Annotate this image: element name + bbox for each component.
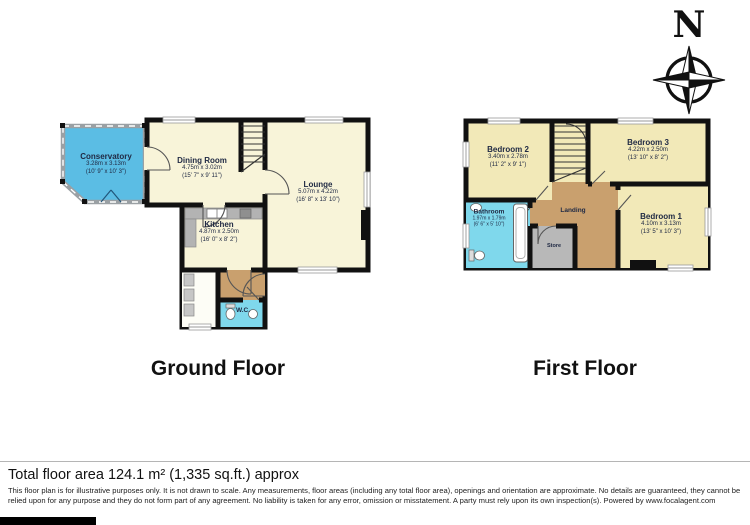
ground-floor-drawing: [55, 112, 375, 337]
bottom-bar: [0, 517, 96, 525]
compass-north-label: N: [648, 6, 730, 44]
hob-icon: [240, 209, 251, 218]
first-floor-plan: Bedroom 2 3.40m x 2.78m (11' 2" x 9' 1")…: [458, 112, 713, 282]
ground-floor-title: Ground Floor: [98, 357, 338, 381]
chimney-breast: [361, 210, 368, 240]
disclaimer-text: This floor plan is for illustrative purp…: [8, 486, 742, 507]
chimney-breast: [630, 260, 656, 268]
wc-floor: [218, 300, 265, 327]
first-floor-title: First Floor: [465, 357, 705, 381]
basin-icon: [471, 204, 482, 212]
first-floor-drawing: [458, 112, 713, 282]
toilet-icon: [226, 309, 235, 320]
basin-icon: [249, 310, 258, 319]
ground-floor-plan: Conservatory 3.28m x 3.13m (10' 9" x 10'…: [55, 112, 375, 337]
conservatory-room: [60, 123, 147, 204]
footer: Total floor area 124.1 m² (1,335 sq.ft.)…: [0, 461, 750, 507]
utility-appliances: [184, 274, 194, 316]
compass-star-icon: [648, 44, 730, 116]
bedroom1-floor: [618, 184, 708, 268]
compass-rose: N: [648, 6, 730, 118]
landing-corridor: [575, 226, 618, 268]
total-floor-area: Total floor area 124.1 m² (1,335 sq.ft.)…: [8, 467, 742, 483]
floor-plan-page: N: [0, 0, 750, 525]
toilet-icon: [475, 251, 485, 260]
